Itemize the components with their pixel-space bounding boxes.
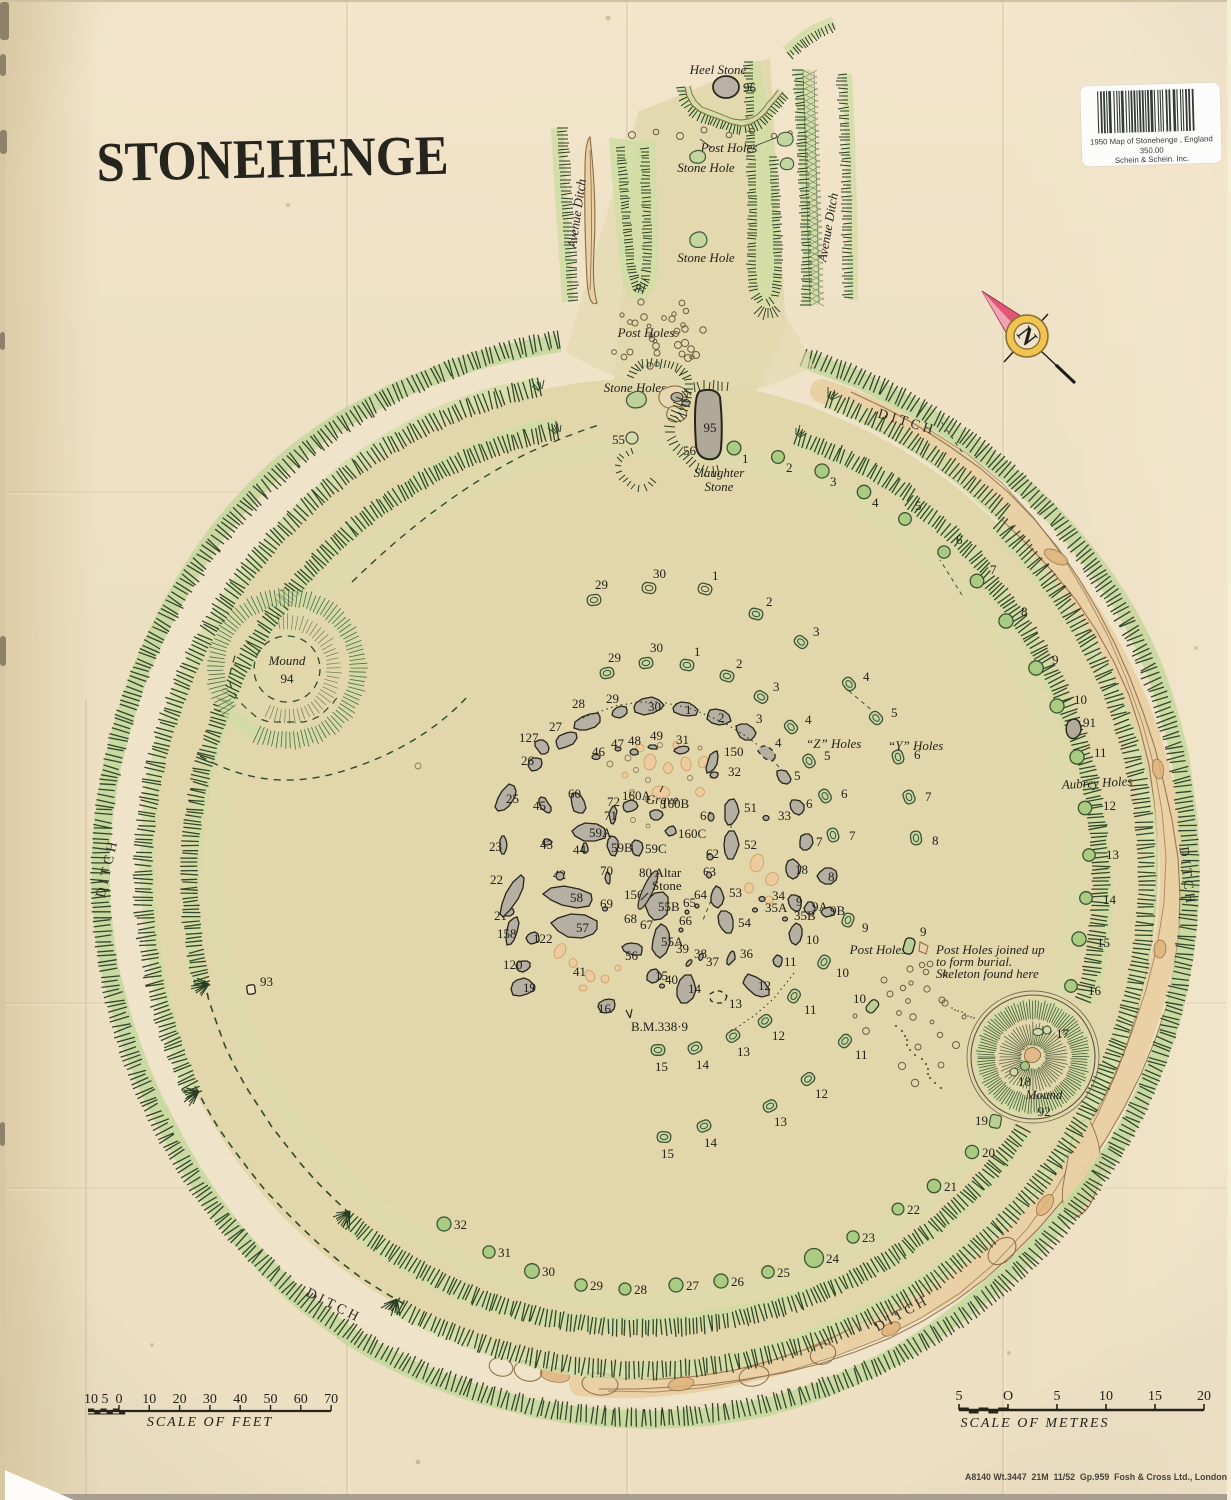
svg-text:59A: 59A	[589, 825, 612, 840]
svg-text:158: 158	[497, 926, 517, 941]
svg-text:“Z” Holes: “Z” Holes	[806, 736, 861, 751]
svg-text:17: 17	[1056, 1026, 1070, 1041]
svg-text:120: 120	[503, 957, 523, 972]
svg-text:58: 58	[570, 890, 583, 905]
svg-text:71: 71	[604, 808, 617, 823]
svg-text:48: 48	[628, 733, 641, 748]
svg-text:20: 20	[982, 1145, 995, 1160]
svg-text:7: 7	[925, 789, 932, 804]
svg-text:59B: 59B	[611, 840, 633, 855]
svg-text:43: 43	[540, 837, 553, 852]
svg-text:14: 14	[696, 1057, 710, 1072]
svg-text:9: 9	[920, 924, 927, 939]
svg-text:6: 6	[806, 796, 813, 811]
svg-text:6: 6	[956, 532, 963, 547]
svg-text:96: 96	[743, 80, 757, 95]
svg-text:Mound: Mound	[268, 653, 306, 668]
svg-text:70: 70	[600, 863, 613, 878]
svg-text:127: 127	[519, 730, 539, 745]
svg-text:18: 18	[1018, 1074, 1031, 1089]
svg-text:4: 4	[863, 669, 870, 684]
svg-text:32: 32	[728, 764, 741, 779]
svg-text:122: 122	[533, 931, 553, 946]
svg-text:15: 15	[655, 1059, 668, 1074]
svg-text:15: 15	[1097, 935, 1110, 950]
svg-text:1: 1	[742, 451, 749, 466]
svg-text:Slaughter: Slaughter	[694, 465, 745, 480]
svg-text:9: 9	[796, 894, 803, 909]
svg-text:45: 45	[533, 798, 546, 813]
svg-text:29: 29	[590, 1278, 603, 1293]
svg-text:5: 5	[794, 768, 801, 783]
svg-text:56: 56	[625, 948, 639, 963]
svg-text:55: 55	[612, 432, 625, 447]
svg-text:35B: 35B	[794, 908, 816, 923]
svg-text:12: 12	[815, 1086, 828, 1101]
svg-text:15: 15	[1148, 1389, 1162, 1404]
svg-text:29: 29	[606, 691, 619, 706]
svg-text:26: 26	[521, 753, 535, 768]
svg-text:40: 40	[665, 972, 678, 987]
svg-text:1: 1	[685, 702, 692, 717]
svg-text:41: 41	[573, 964, 586, 979]
svg-text:5: 5	[102, 1392, 109, 1407]
svg-text:Post Holes: Post Holes	[849, 942, 907, 957]
svg-text:33: 33	[778, 808, 791, 823]
svg-text:3: 3	[830, 474, 837, 489]
svg-text:59C: 59C	[645, 841, 667, 856]
svg-text:7: 7	[990, 562, 997, 577]
svg-text:25: 25	[777, 1265, 790, 1280]
svg-text:B.M.338·9: B.M.338·9	[631, 1019, 688, 1034]
svg-text:28: 28	[634, 1282, 647, 1297]
svg-text:5: 5	[1054, 1389, 1061, 1404]
svg-text:4: 4	[775, 735, 782, 750]
svg-text:4: 4	[805, 712, 812, 727]
svg-text:22: 22	[490, 872, 503, 887]
svg-text:18: 18	[795, 862, 808, 877]
svg-text:53: 53	[729, 885, 742, 900]
svg-text:5: 5	[956, 1389, 963, 1404]
svg-text:30: 30	[650, 640, 663, 655]
svg-text:30: 30	[203, 1392, 217, 1407]
svg-text:27: 27	[686, 1278, 700, 1293]
svg-text:15: 15	[661, 1146, 674, 1161]
svg-text:13: 13	[1106, 847, 1119, 862]
svg-text:Stone: Stone	[652, 878, 682, 893]
svg-text:92: 92	[1038, 1104, 1051, 1119]
svg-text:5: 5	[891, 705, 898, 720]
svg-text:8: 8	[1021, 604, 1028, 619]
svg-text:14: 14	[688, 981, 702, 996]
svg-text:8: 8	[828, 869, 835, 884]
svg-text:72: 72	[607, 794, 620, 809]
svg-text:1: 1	[712, 568, 719, 583]
svg-text:31: 31	[498, 1245, 511, 1260]
svg-text:10: 10	[853, 991, 866, 1006]
svg-text:7: 7	[816, 834, 823, 849]
svg-text:35A: 35A	[765, 900, 788, 915]
svg-text:29: 29	[595, 577, 608, 592]
svg-text:SCALE OF FEET: SCALE OF FEET	[147, 1415, 273, 1430]
svg-text:57: 57	[576, 920, 590, 935]
svg-text:11: 11	[804, 1002, 817, 1017]
svg-text:19: 19	[523, 980, 536, 995]
svg-text:66: 66	[679, 913, 693, 928]
svg-text:68: 68	[624, 911, 637, 926]
svg-text:20: 20	[173, 1392, 187, 1407]
svg-text:11: 11	[1094, 745, 1107, 760]
svg-text:10: 10	[1099, 1389, 1113, 1404]
svg-text:11: 11	[855, 1047, 868, 1062]
svg-text:14: 14	[704, 1135, 718, 1150]
svg-text:64: 64	[694, 887, 708, 902]
svg-text:55B: 55B	[658, 899, 680, 914]
svg-text:32: 32	[454, 1217, 467, 1232]
svg-text:21: 21	[944, 1179, 957, 1194]
svg-text:49: 49	[650, 728, 663, 743]
svg-text:2: 2	[736, 656, 743, 671]
svg-text:10: 10	[836, 965, 849, 980]
svg-text:10: 10	[84, 1392, 98, 1407]
svg-text:12: 12	[758, 978, 771, 993]
svg-text:10: 10	[142, 1392, 156, 1407]
svg-text:9B: 9B	[830, 903, 846, 918]
svg-text:8: 8	[932, 833, 939, 848]
svg-text:SCALE OF METRES: SCALE OF METRES	[961, 1416, 1110, 1431]
svg-text:Stone: Stone	[705, 479, 734, 494]
svg-text:Mound: Mound	[1025, 1087, 1063, 1102]
svg-text:12: 12	[772, 1028, 785, 1043]
svg-text:16: 16	[1088, 983, 1102, 998]
svg-text:11: 11	[784, 954, 797, 969]
svg-text:65: 65	[683, 895, 696, 910]
svg-text:0: 0	[116, 1392, 123, 1407]
svg-text:A8140 Wt.3447 21M 11/52 Gp.: A8140 Wt.3447 21M 11/52 Gp.959 Fosh & Cr…	[965, 1472, 1227, 1482]
svg-text:67: 67	[640, 917, 654, 932]
svg-text:9: 9	[862, 920, 869, 935]
svg-text:51: 51	[744, 800, 757, 815]
svg-text:36: 36	[740, 946, 754, 961]
svg-text:Post Holes: Post Holes	[700, 140, 758, 155]
svg-text:91: 91	[1083, 715, 1096, 730]
svg-text:3: 3	[773, 679, 780, 694]
svg-text:Grave: Grave	[646, 792, 679, 807]
svg-text:24: 24	[826, 1251, 840, 1266]
svg-text:22: 22	[907, 1202, 920, 1217]
svg-text:9: 9	[1052, 652, 1059, 667]
svg-text:4: 4	[872, 495, 879, 510]
svg-text:10: 10	[1074, 692, 1087, 707]
svg-text:6: 6	[841, 786, 848, 801]
svg-text:29: 29	[608, 650, 621, 665]
svg-text:160C: 160C	[678, 826, 706, 841]
svg-text:27: 27	[549, 719, 563, 734]
svg-text:12: 12	[1103, 798, 1116, 813]
svg-text:44: 44	[573, 842, 587, 857]
svg-text:95: 95	[704, 420, 717, 435]
svg-text:30: 30	[542, 1264, 555, 1279]
svg-text:2: 2	[718, 710, 725, 725]
svg-text:54: 54	[738, 915, 752, 930]
svg-text:10: 10	[806, 932, 819, 947]
svg-text:“Y” Holes: “Y” Holes	[888, 738, 943, 753]
svg-text:13: 13	[737, 1044, 750, 1059]
svg-text:Skeleton found here: Skeleton found here	[936, 966, 1039, 981]
svg-text:Heel Stone: Heel Stone	[689, 62, 747, 77]
svg-text:5: 5	[915, 498, 922, 513]
svg-text:2: 2	[766, 594, 773, 609]
svg-text:23: 23	[489, 839, 502, 854]
svg-text:93: 93	[260, 974, 273, 989]
svg-text:3: 3	[756, 711, 763, 726]
svg-text:28: 28	[572, 696, 585, 711]
svg-text:30: 30	[648, 699, 661, 714]
svg-text:70: 70	[324, 1392, 338, 1407]
svg-text:30: 30	[653, 566, 666, 581]
svg-text:60: 60	[568, 786, 581, 801]
svg-text:60: 60	[294, 1392, 308, 1407]
svg-text:94: 94	[281, 671, 295, 686]
svg-text:16: 16	[598, 1001, 612, 1016]
svg-text:13: 13	[774, 1114, 787, 1129]
svg-text:19: 19	[975, 1113, 988, 1128]
svg-text:20: 20	[1197, 1389, 1211, 1404]
svg-text:56: 56	[683, 443, 697, 458]
svg-text:39: 39	[676, 941, 689, 956]
svg-text:Stone Hole: Stone Hole	[677, 250, 735, 265]
svg-text:1: 1	[694, 644, 701, 659]
svg-text:O: O	[1003, 1389, 1013, 1404]
svg-text:STONEHENGE: STONEHENGE	[96, 125, 449, 194]
svg-text:13: 13	[729, 996, 742, 1011]
svg-text:Stone Hole: Stone Hole	[677, 160, 735, 175]
svg-text:2: 2	[786, 460, 793, 475]
svg-text:26: 26	[731, 1274, 745, 1289]
svg-text:14: 14	[1103, 892, 1117, 907]
svg-text:150: 150	[724, 744, 744, 759]
svg-text:40: 40	[233, 1392, 247, 1407]
svg-text:3: 3	[813, 624, 820, 639]
svg-text:50: 50	[264, 1392, 278, 1407]
svg-text:52: 52	[744, 837, 757, 852]
svg-text:Post Holes: Post Holes	[617, 325, 675, 340]
svg-text:31: 31	[676, 732, 689, 747]
svg-text:23: 23	[862, 1230, 875, 1245]
svg-text:25: 25	[506, 791, 519, 806]
svg-text:7: 7	[849, 828, 856, 843]
svg-text:37: 37	[706, 954, 720, 969]
